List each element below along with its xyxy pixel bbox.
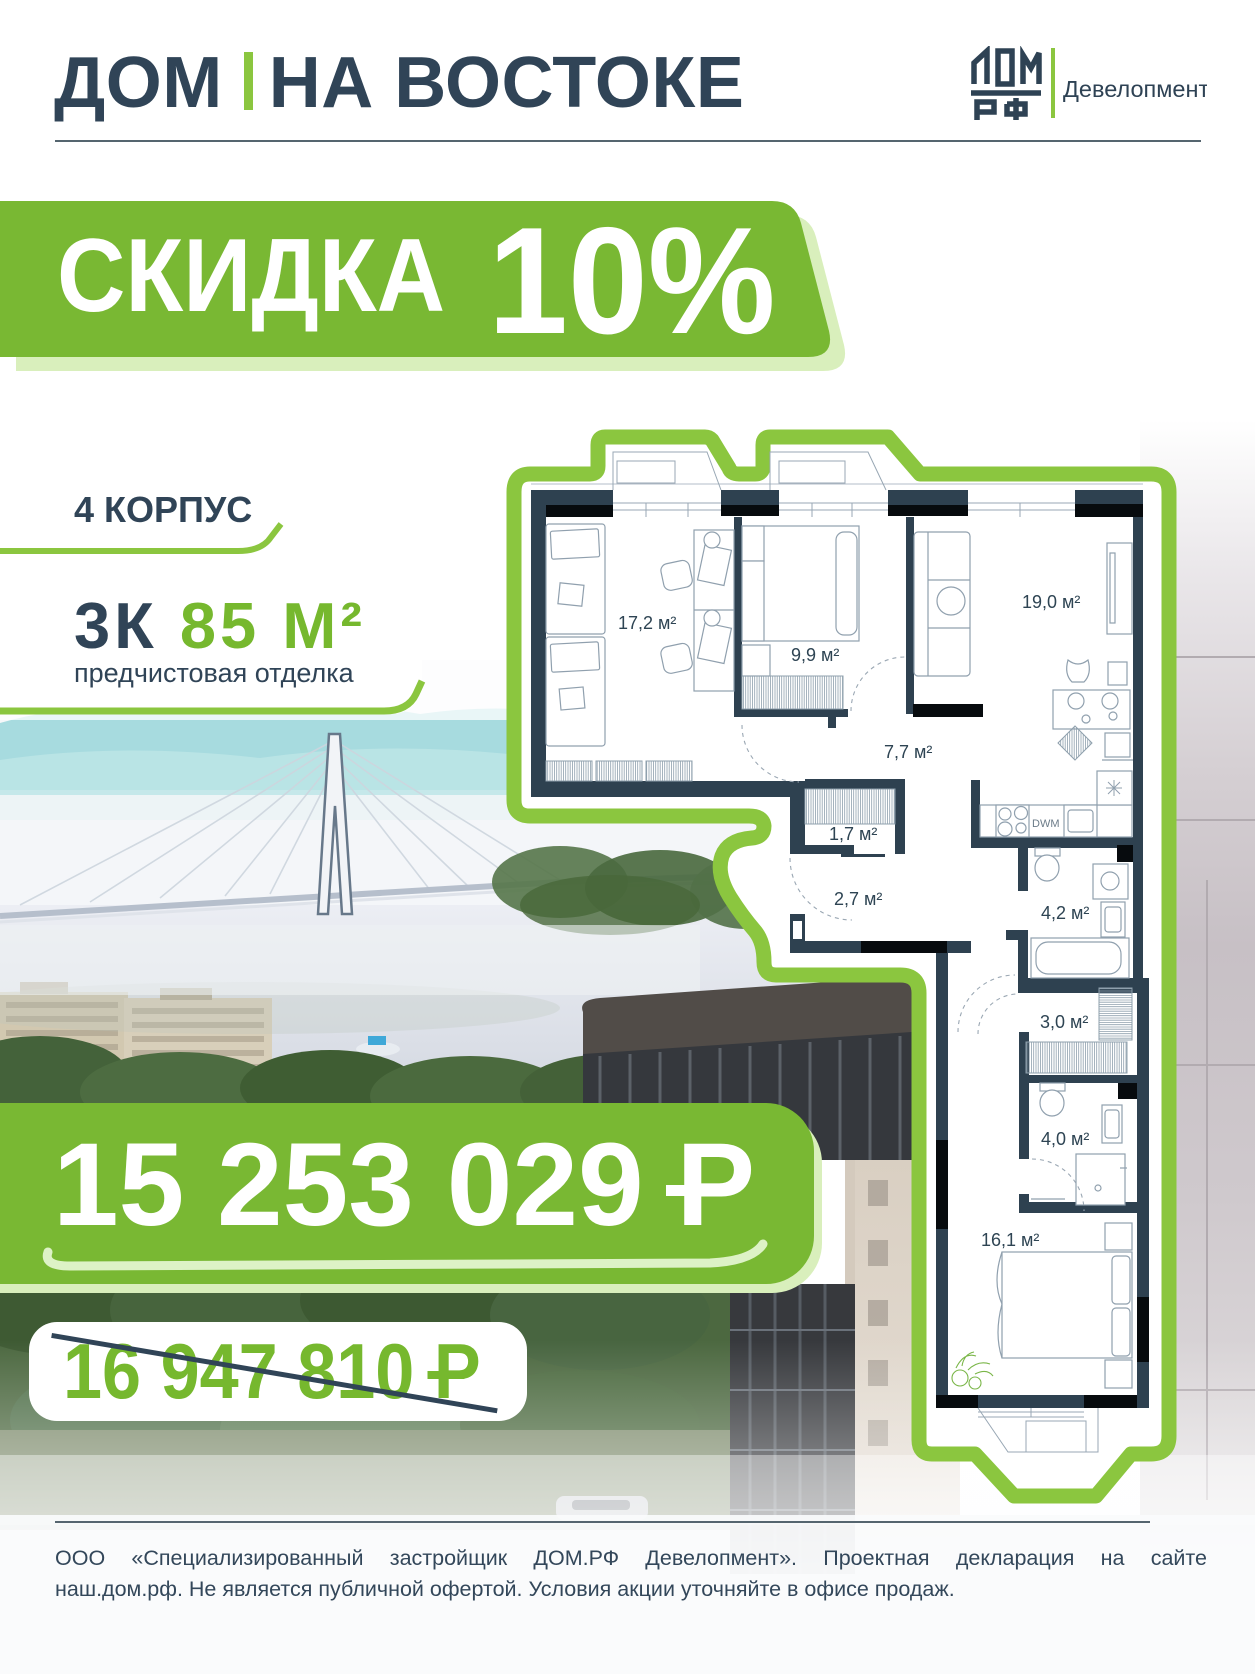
svg-text:9,9 м²: 9,9 м² [791, 645, 839, 665]
svg-text:1,7 м²: 1,7 м² [829, 824, 877, 844]
svg-text:4,2 м²: 4,2 м² [1041, 903, 1089, 923]
svg-text:19,0 м²: 19,0 м² [1022, 592, 1080, 612]
svg-text:Девелопмент: Девелопмент [1063, 76, 1207, 102]
svg-text:17,2 м²: 17,2 м² [618, 613, 676, 633]
svg-text:16,1 м²: 16,1 м² [981, 1230, 1039, 1250]
svg-text:4,0 м²: 4,0 м² [1041, 1129, 1089, 1149]
svg-text:7,7 м²: 7,7 м² [884, 742, 932, 762]
svg-text:2,7 м²: 2,7 м² [834, 889, 882, 909]
svg-text:DWM: DWM [1032, 818, 1060, 830]
svg-text:3,0 м²: 3,0 м² [1040, 1012, 1088, 1032]
